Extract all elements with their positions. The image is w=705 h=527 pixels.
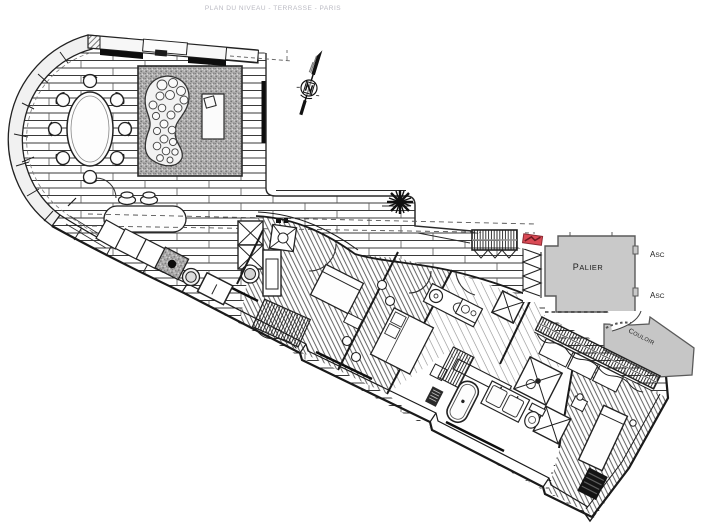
svg-text:ASC: ASC <box>650 291 665 300</box>
svg-text:PLAN DU NIVEAU - TERRASSE - PA: PLAN DU NIVEAU - TERRASSE - PARIS <box>205 5 341 12</box>
svg-text:PALIER: PALIER <box>573 262 603 272</box>
svg-text:ASC: ASC <box>650 250 665 259</box>
